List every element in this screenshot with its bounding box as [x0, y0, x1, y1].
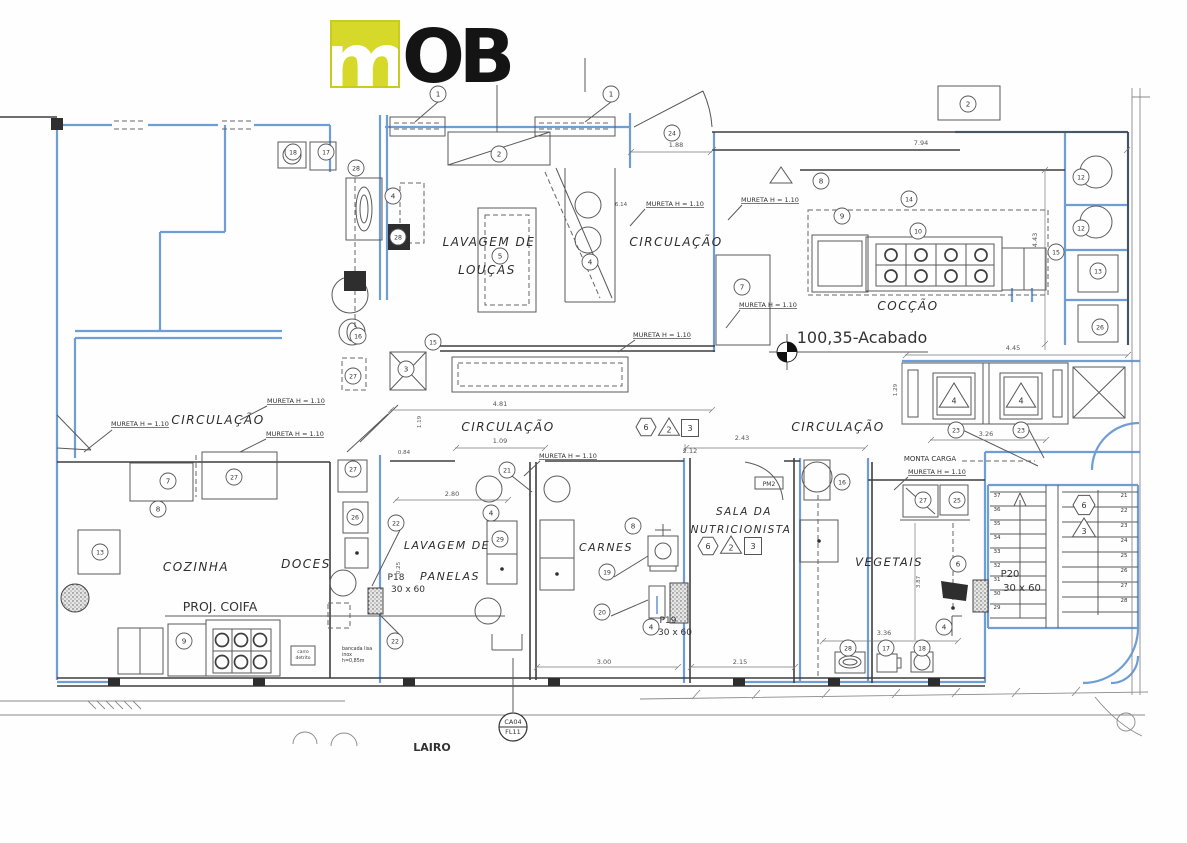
dimension-label: 3.36 [877, 629, 891, 637]
dimension-label: 7.94 [914, 139, 928, 147]
annotation-label: MURETA H = 1.10 [646, 200, 704, 208]
stair-number: 34 [994, 535, 1001, 541]
stair-number: 36 [994, 507, 1001, 513]
annotation-label: MURETA H = 1.10 [267, 397, 325, 405]
annotation-label: 30 x 60 [1003, 583, 1041, 594]
keynote-number: 23 [952, 428, 960, 435]
keynote-number: 18 [918, 646, 926, 653]
keynote-number: 9 [840, 212, 845, 221]
dimension-label: 2.15 [733, 658, 747, 666]
badge-number: 2 [666, 426, 671, 435]
keynote-number: 29 [496, 537, 504, 544]
keynote-number: 26 [351, 515, 359, 522]
dimension-label: 3.87 [916, 575, 922, 588]
equipment-lines [57, 58, 1125, 727]
keynote-number: 4 [391, 192, 396, 201]
annotation-label: P20 [1001, 569, 1020, 580]
keynote-number: 10 [914, 229, 922, 236]
dimension-label: 1.09 [493, 437, 507, 445]
dimension-label: 0.25 [396, 561, 402, 574]
mob-logo: m OB [330, 20, 509, 88]
keynote-number: 28 [844, 646, 852, 653]
stair-number: 21 [1121, 493, 1128, 499]
annotation-label: PM2 [763, 481, 776, 488]
room-label: CIRCULAÇÃO [461, 419, 554, 434]
dimension-label: 1.29 [893, 383, 899, 396]
keynote-number: 14 [905, 197, 913, 204]
annotation-label: MURETA H = 1.10 [633, 331, 691, 339]
logo-m-box: m [330, 20, 400, 88]
keynote-number: 7 [740, 283, 745, 292]
keynote-number: 12 [1077, 226, 1085, 233]
keynote-bubbles: 1122241817284281627547891410151212132631… [92, 86, 1108, 656]
room-label: CIRCULAÇÃO [171, 412, 264, 427]
annotation-label: MONTA CARGA [904, 455, 956, 463]
keynote-number: 25 [953, 498, 961, 505]
keynote-number: 28 [352, 166, 360, 173]
keynote-number: 7 [166, 477, 171, 486]
keynote-number: 5 [498, 252, 503, 261]
keynote-number: 12 [1077, 175, 1085, 182]
room-label: COZINHA [163, 560, 229, 574]
keynote-number: 26 [1096, 325, 1104, 332]
room-label: PANELAS [420, 570, 480, 583]
dimension-label: 6.14 [615, 202, 628, 208]
annotation-label: inox [342, 652, 352, 658]
stair-number: 30 [994, 591, 1001, 597]
room-label: DOCES [281, 557, 331, 571]
room-label: CIRCULAÇÃO [791, 419, 884, 434]
stair-number: 24 [1121, 538, 1128, 544]
keynote-number: 22 [391, 639, 399, 646]
badge-number: 2 [728, 544, 733, 553]
keynote-number: 17 [322, 150, 330, 157]
dimension-label: 1.88 [669, 141, 683, 149]
level-marker [777, 342, 797, 362]
dimension-label: 2.12 [683, 447, 697, 455]
logo-m: m [330, 31, 400, 88]
annotation-label: MURETA H = 1.10 [741, 196, 799, 204]
keynote-number: 2 [966, 100, 971, 109]
annotation-label: bancada lisa [342, 646, 372, 652]
keynote-number: 2 [497, 150, 502, 159]
room-label: CIRCULAÇÃO [629, 234, 722, 249]
keynote-number: 13 [1094, 269, 1102, 276]
keynote-number: 8 [631, 522, 636, 531]
stair-number: 29 [994, 605, 1001, 611]
keynote-number: 20 [598, 610, 606, 617]
stair-number: 28 [1121, 598, 1128, 604]
keynote-number: 4 [588, 258, 593, 267]
stair-number: 32 [994, 563, 1001, 569]
keynote-number: 27 [230, 475, 238, 482]
room-label: COCÇÃO [877, 298, 938, 313]
keynote-number: 22 [392, 521, 400, 528]
stair-number: 27 [1121, 583, 1128, 589]
keynote-number: 1 [609, 90, 614, 99]
dimension-label: 1.19 [417, 415, 423, 428]
room-label: SALA DA [716, 506, 772, 518]
annotation-label: CA04 [504, 718, 521, 726]
room-label: NUTRICIONISTA [691, 524, 792, 536]
dimension-label: 0.84 [398, 450, 411, 456]
annotation-label: MURETA H = 1.10 [739, 301, 797, 309]
stair-number: 35 [994, 521, 1001, 527]
annotation-label: P19 [660, 616, 677, 626]
stair-number: 37 [994, 493, 1001, 499]
floor-plan-page: m OB [0, 0, 1187, 843]
dimension-label: 3.26 [979, 430, 993, 438]
badge-number: 6 [1081, 501, 1086, 510]
badge-number: 6 [705, 542, 710, 551]
keynote-number: 8 [156, 505, 161, 514]
stair-number: 26 [1121, 568, 1128, 574]
badge-number: 4 [951, 396, 956, 405]
badge-number: 3 [1081, 527, 1086, 536]
annotation-label: MURETA H = 1.10 [539, 452, 597, 460]
keynote-number: 9 [182, 637, 187, 646]
keynote-number: 16 [354, 334, 362, 341]
annotation-label: PROJ. COIFA [183, 599, 258, 614]
keynote-number: 15 [1052, 250, 1060, 257]
keynote-number: 13 [96, 550, 104, 557]
keynote-number: 3 [404, 365, 409, 374]
room-label: LOUÇAS [458, 263, 516, 277]
stair-number: 22 [1121, 508, 1128, 514]
keynote-number: 4 [489, 509, 494, 518]
stair-number: 25 [1121, 553, 1128, 559]
keynote-number: 19 [603, 570, 611, 577]
keynote-number: 6 [956, 560, 961, 569]
room-label: VEGETAIS [855, 555, 923, 569]
keynote-number: 24 [668, 131, 676, 138]
stair-treads [990, 492, 1138, 618]
floor-plan-svg: LAVAGEM DELOUÇASCIRCULAÇÃOCOCÇÃOCIRCULAÇ… [0, 0, 1187, 843]
dimension-label: 4.45 [1006, 344, 1020, 352]
annotation-label: 30 x 60 [658, 628, 692, 638]
stair-number: 33 [994, 549, 1001, 555]
dimension-label: 2.80 [445, 490, 459, 498]
annotation-label: FL11 [505, 728, 521, 736]
keynote-number: 18 [289, 150, 297, 157]
keynote-number: 27 [349, 374, 357, 381]
stair-number: 31 [994, 577, 1001, 583]
dimension-label: 2.43 [735, 434, 749, 442]
keynote-number: 21 [503, 468, 511, 475]
dimension-label: 4.43 [1031, 233, 1039, 247]
annotation-label: MURETA H = 1.10 [908, 468, 966, 476]
badge-number: 4 [1018, 396, 1023, 405]
keynote-number: 8 [819, 177, 824, 186]
keynote-number: 15 [429, 340, 437, 347]
keynote-number: 4 [649, 623, 654, 632]
dimension-label: 3.00 [597, 658, 611, 666]
room-label: LAVAGEM DE [443, 235, 536, 249]
keynote-number: 17 [882, 646, 890, 653]
annotation-label: carro [297, 649, 309, 655]
keynote-number: 4 [942, 623, 947, 632]
stair-number: 23 [1121, 523, 1128, 529]
annotation-label: detrito [295, 655, 310, 661]
badge-number: 3 [687, 424, 692, 433]
dimension-label: 4.81 [493, 400, 507, 408]
badge-number: 3 [750, 542, 755, 551]
keynote-number: 27 [349, 467, 357, 474]
keynote-number: 27 [919, 498, 927, 505]
room-label: LAVAGEM DE [404, 539, 490, 552]
badge-number: 6 [643, 423, 648, 432]
annotation-label: MURETA H = 1.10 [266, 430, 324, 438]
annotation-label: h=0,85m [342, 658, 365, 664]
annotation-label: 30 x 60 [391, 585, 425, 595]
annotation-label: 100,35-Acabado [797, 328, 928, 347]
logo-ob: OB [402, 27, 509, 88]
annotation-label: MURETA H = 1.10 [111, 420, 169, 428]
annotation-label: LAIRO [413, 741, 450, 754]
room-label: CARNES [579, 541, 633, 554]
keynote-number: 23 [1017, 428, 1025, 435]
keynote-number: 28 [394, 235, 402, 242]
keynote-number: 16 [838, 480, 846, 487]
